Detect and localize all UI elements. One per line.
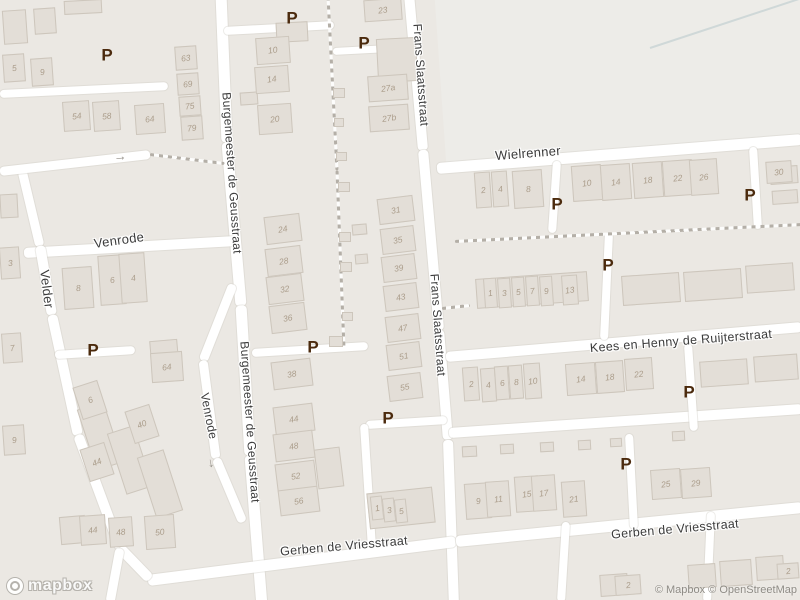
building-number: 3 (386, 505, 392, 514)
building: 10 (255, 35, 291, 64)
road-segment (366, 416, 447, 429)
building-number: 64 (145, 114, 156, 124)
building: 25 (650, 468, 682, 500)
building: 26 (689, 158, 719, 196)
building-number: 14 (611, 177, 622, 187)
building: 18 (595, 360, 625, 394)
building: 9 (2, 424, 26, 455)
building: 10 (571, 164, 603, 202)
building-number: 17 (539, 488, 550, 498)
building (683, 268, 743, 302)
building-number: 2 (468, 379, 474, 388)
building-number: 2 (785, 566, 791, 575)
building: 24 (263, 213, 302, 245)
street-label: Kees en Henny de Ruijterstraat (589, 327, 772, 355)
road-segment (106, 547, 125, 600)
building: 14 (600, 163, 632, 201)
parking-icon: P (358, 35, 369, 52)
building-number: 69 (183, 79, 194, 89)
building-number: 3 (7, 258, 13, 267)
building (500, 444, 515, 455)
parking-icon: P (744, 187, 755, 204)
street-label: Velder (37, 269, 57, 309)
road-segment (360, 424, 376, 549)
building: 22 (624, 357, 654, 391)
building-number: 31 (391, 205, 402, 215)
building: 48 (108, 516, 134, 548)
building: 5 (394, 498, 408, 523)
building-number: 2 (480, 185, 486, 194)
building: 63 (174, 45, 198, 70)
parking-icon: P (382, 410, 393, 427)
oneway-arrow-icon: → (205, 455, 220, 470)
building-number: 14 (267, 74, 278, 84)
building-number: 38 (287, 369, 298, 379)
building: 11 (485, 480, 511, 518)
parking-icon: P (101, 47, 112, 64)
building (719, 559, 753, 587)
road-segment (18, 169, 45, 247)
building-number: 47 (398, 323, 409, 333)
building-number: 1 (374, 503, 380, 512)
building: 17 (531, 474, 557, 512)
building-number: 10 (582, 178, 593, 188)
building: 55 (387, 372, 424, 402)
building-number: 9 (475, 496, 481, 505)
building: 56 (278, 486, 321, 517)
building-number: 32 (280, 284, 291, 294)
building-number: 20 (270, 114, 281, 124)
parking-icon: P (683, 384, 694, 401)
building-number: 64 (162, 362, 173, 372)
parking-icon: P (286, 10, 297, 27)
building-number: 24 (278, 224, 289, 234)
road-segment (443, 440, 459, 600)
building: 23 (363, 0, 402, 22)
building-number: 18 (605, 372, 616, 382)
building-number: 9 (543, 286, 549, 295)
building-number: 5 (11, 63, 17, 72)
building-number: 50 (155, 527, 166, 537)
building: 2 (474, 171, 492, 208)
building-number: 4 (485, 380, 491, 389)
building: 47 (385, 313, 422, 343)
building-number: 43 (396, 292, 407, 302)
building (672, 431, 686, 442)
building: 50 (144, 514, 176, 550)
building-number: 8 (75, 283, 81, 292)
building-number: 6 (499, 378, 505, 387)
building-number: 13 (565, 285, 576, 295)
mapbox-logo[interactable]: mapbox (6, 577, 92, 595)
building (342, 312, 353, 321)
building: 29 (680, 467, 712, 499)
parking-icon: P (87, 342, 98, 359)
building (540, 442, 555, 453)
building (2, 9, 28, 45)
building: 30 (765, 160, 792, 184)
parking-icon: P (551, 196, 562, 213)
building: 3 (496, 278, 511, 309)
building-number: 54 (71, 111, 82, 121)
building: 2 (614, 574, 641, 596)
building (462, 446, 478, 458)
building-number: 9 (39, 67, 45, 76)
building-number: 9 (11, 435, 17, 444)
building (699, 358, 749, 387)
mapbox-logo-icon (6, 577, 24, 595)
road-segment (199, 282, 237, 361)
street-label: Burgemeester de Geusstraat (237, 341, 262, 503)
building: 5 (2, 53, 26, 82)
building-number: 29 (691, 478, 702, 488)
building (355, 253, 369, 264)
building-number: 48 (289, 441, 300, 451)
map-canvas[interactable]: 59545864636975791014202327a27b3798646464… (0, 0, 800, 600)
street-label: Frans Slaatsstraat (427, 273, 448, 377)
building-number: 25 (661, 479, 672, 489)
building: 4 (118, 252, 147, 304)
street-label: Venrode (198, 392, 221, 441)
road-segment (47, 314, 83, 436)
building-number: 28 (279, 256, 290, 266)
building (336, 152, 347, 161)
building: 35 (380, 225, 417, 255)
footpath (455, 223, 800, 243)
building-number: 63 (181, 53, 192, 63)
building: 79 (180, 115, 204, 140)
building-number: 75 (185, 101, 196, 111)
building: 21 (561, 480, 587, 518)
building-number: 58 (101, 111, 112, 121)
building (338, 182, 350, 192)
building: 44 (79, 514, 107, 546)
building: 2 (462, 366, 480, 401)
parking-icon: P (620, 456, 631, 473)
building: 8 (508, 365, 524, 400)
building (334, 118, 344, 127)
building (329, 336, 343, 347)
building-number: 5 (398, 506, 404, 515)
building (610, 438, 622, 448)
building-number: 4 (497, 184, 503, 193)
building: 7 (1, 332, 23, 363)
building-number: 14 (576, 374, 587, 384)
mapbox-logo-text: mapbox (28, 577, 92, 595)
building-number: 26 (699, 172, 710, 182)
building-number: 39 (394, 263, 405, 273)
building: 36 (268, 302, 307, 334)
building-number: 21 (569, 494, 580, 504)
building: 4 (491, 170, 509, 207)
building (621, 272, 681, 306)
building (340, 262, 352, 272)
building: 14 (565, 362, 597, 396)
building: 48 (272, 430, 315, 463)
building: 7 (524, 276, 539, 307)
building: 13 (561, 274, 579, 305)
building (352, 223, 368, 235)
footpath (336, 170, 346, 348)
building-number: 48 (116, 527, 127, 537)
building-number: 44 (289, 414, 300, 424)
building-number: 23 (378, 5, 389, 15)
building-number: 30 (774, 167, 785, 177)
building-number: 6 (109, 275, 115, 284)
building (339, 232, 351, 242)
building-number: 56 (294, 496, 305, 506)
building: 43 (383, 282, 420, 312)
building-number: 4 (130, 273, 136, 282)
building-number: 22 (673, 173, 684, 183)
building: 20 (257, 103, 293, 135)
building-number: 55 (400, 382, 411, 392)
road-segment (0, 82, 168, 98)
building: 27a (367, 74, 409, 103)
building: 27b (368, 104, 410, 133)
building: 14 (254, 64, 290, 93)
building (745, 262, 795, 293)
building (772, 189, 799, 205)
building: 10 (522, 362, 541, 399)
building (64, 0, 103, 15)
building-number: 15 (522, 489, 533, 499)
building-number: 2 (625, 580, 631, 589)
building-number: 1 (487, 288, 493, 297)
building (333, 88, 345, 98)
building: 51 (386, 341, 423, 371)
building: 32 (265, 273, 304, 305)
building-number: 8 (513, 377, 519, 386)
building-number: 7 (529, 286, 535, 295)
attribution[interactable]: © Mapbox © OpenStreetMap (655, 584, 797, 596)
building: 31 (377, 195, 416, 225)
building-number: 7 (9, 343, 15, 352)
building: 1 (482, 278, 497, 309)
building-number: 22 (634, 369, 645, 379)
building: 9 (30, 57, 54, 86)
building: 8 (512, 169, 545, 209)
building-number: 10 (527, 376, 538, 386)
building-number: 52 (291, 471, 302, 481)
building-number: 44 (88, 525, 99, 535)
building: 18 (632, 161, 664, 199)
building: 39 (381, 253, 418, 283)
building-number: 6 (86, 395, 94, 405)
building-number: 10 (268, 45, 279, 55)
building (314, 447, 345, 490)
building-number: 79 (187, 123, 198, 133)
building-number: 35 (393, 235, 404, 245)
building (578, 440, 592, 451)
building: 64 (134, 103, 166, 135)
building (0, 194, 19, 219)
building (753, 353, 799, 382)
building-number: 44 (91, 456, 103, 467)
building: 9 (538, 276, 553, 307)
building-number: 51 (399, 351, 410, 361)
building: 38 (270, 358, 313, 391)
road-segment (0, 150, 150, 176)
building-number: 40 (136, 418, 148, 429)
road-segment (600, 233, 613, 340)
parking-icon: P (602, 257, 613, 274)
building-number: 27b (381, 113, 396, 123)
building: 3 (0, 246, 21, 279)
parking-icon: P (307, 339, 318, 356)
building-number: 11 (493, 494, 503, 504)
footpath (442, 304, 470, 310)
building-number: 8 (525, 184, 531, 193)
building: 58 (91, 100, 120, 132)
building: 54 (61, 100, 90, 132)
building: 8 (62, 266, 95, 310)
building: 75 (178, 95, 201, 116)
road-segment (625, 434, 638, 529)
building-number: 36 (283, 313, 294, 323)
oneway-arrow-icon: → (113, 149, 127, 163)
building-number: 3 (501, 288, 507, 297)
building: 69 (176, 72, 199, 95)
building: 5 (510, 277, 525, 308)
building-number: 18 (643, 175, 654, 185)
building (33, 7, 57, 34)
footpath (150, 153, 224, 165)
building-number: 27a (380, 83, 395, 93)
building: 2 (776, 562, 799, 579)
building: 64 (150, 351, 184, 383)
building-number: 5 (515, 287, 521, 296)
road-segment (449, 404, 800, 438)
